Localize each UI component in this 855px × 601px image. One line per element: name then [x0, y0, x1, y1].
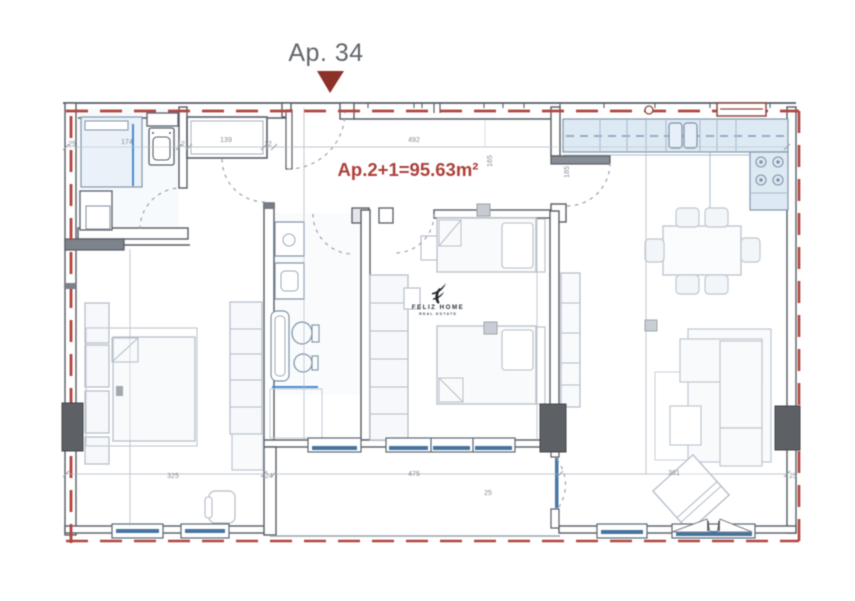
svg-text:475: 475	[408, 471, 420, 478]
svg-text:12: 12	[177, 141, 185, 148]
svg-text:REAL ESTATE: REAL ESTATE	[419, 311, 457, 316]
svg-text:Ap.2+1=95.63m²: Ap.2+1=95.63m²	[338, 159, 479, 180]
svg-text:492: 492	[408, 137, 420, 144]
svg-text:325: 325	[167, 473, 179, 480]
svg-text:12: 12	[264, 141, 272, 148]
svg-text:185: 185	[564, 166, 571, 178]
svg-text:139: 139	[220, 137, 232, 144]
svg-text:165: 165	[487, 155, 494, 167]
svg-text:24: 24	[265, 473, 273, 480]
svg-text:25: 25	[484, 490, 492, 497]
svg-text:174: 174	[121, 139, 133, 146]
svg-text:381: 381	[668, 470, 680, 477]
svg-text:FELIZ HOME: FELIZ HOME	[412, 304, 464, 311]
svg-text:25: 25	[789, 473, 797, 480]
svg-text:25: 25	[68, 141, 76, 148]
svg-text:Ap. 34: Ap. 34	[288, 39, 363, 67]
